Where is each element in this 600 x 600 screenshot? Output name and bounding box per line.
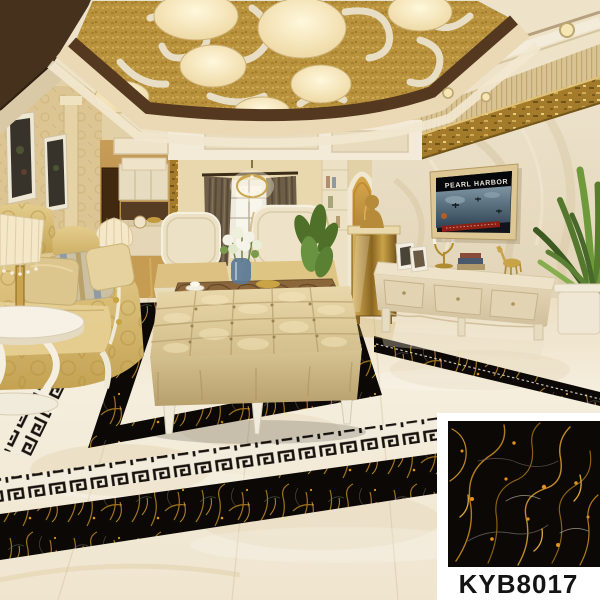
decor-plate bbox=[134, 216, 146, 228]
product-code-label: KYB8017 bbox=[437, 569, 600, 600]
picture-frame-left-2 bbox=[44, 134, 68, 212]
picture-frame-left bbox=[6, 112, 36, 204]
tv: PEARL HARBOR bbox=[430, 164, 522, 244]
books-stack bbox=[457, 253, 485, 270]
living-room-photo: PEARL HARBOR bbox=[0, 0, 600, 600]
photo-frames bbox=[396, 242, 428, 272]
product-swatch-card: KYB8017 bbox=[437, 413, 600, 600]
product-tile-image bbox=[448, 421, 600, 567]
black-gold-marble-tile bbox=[448, 421, 600, 567]
gold-bowl bbox=[256, 280, 280, 288]
decor-bowl bbox=[147, 217, 161, 223]
